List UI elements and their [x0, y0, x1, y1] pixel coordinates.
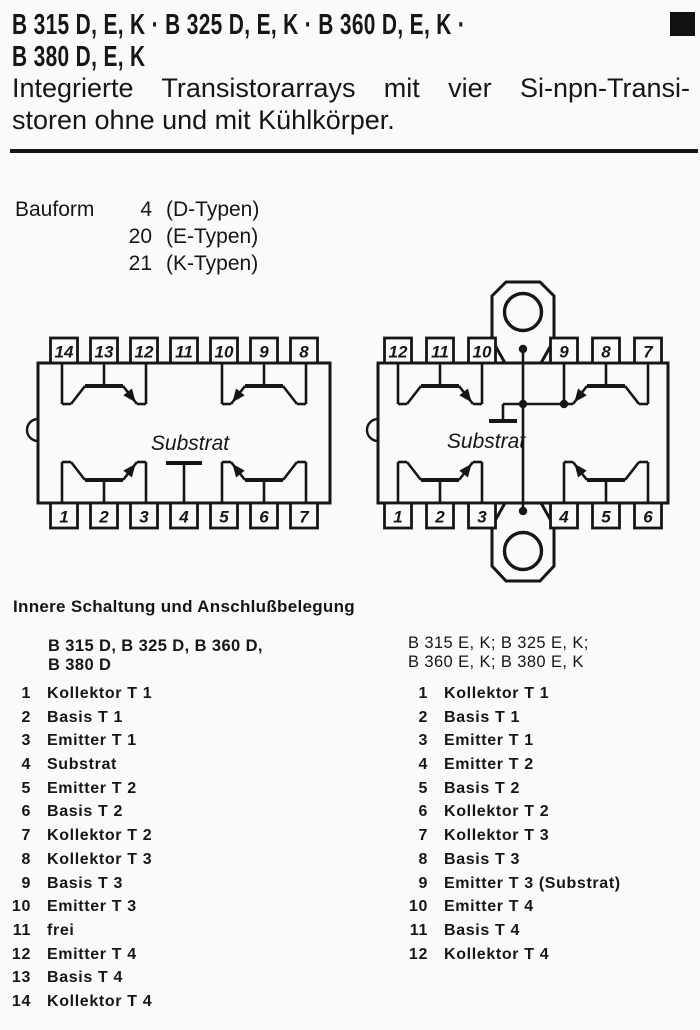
junction-dot — [560, 400, 568, 408]
pin-number-label: 11 — [431, 343, 449, 362]
pin-label: Emitter T 4 — [47, 946, 137, 963]
pin-number: 10 — [398, 895, 428, 919]
index-notch-icon — [27, 419, 38, 441]
pin-label: Basis T 1 — [444, 709, 520, 726]
pin-row: 14Kollektor T 4 — [8, 990, 152, 1014]
pin-label: Emitter T 3 — [47, 898, 137, 915]
pin-label: Kollektor T 3 — [444, 827, 549, 844]
pin-number-label: 9 — [559, 343, 569, 362]
page-title: B 315 D, E, K · B 325 D, E, K · B 360 D,… — [12, 9, 465, 73]
pin-number: 7 — [398, 824, 428, 848]
bauform-number: 20 — [118, 223, 152, 250]
pin-number: 12 — [398, 943, 428, 967]
bauform-type: (E-Typen) — [152, 223, 259, 250]
bauform-label: Bauform — [15, 196, 118, 223]
junction-dot — [519, 507, 527, 515]
pin-label: Kollektor T 1 — [444, 685, 549, 702]
pin-row: 8Kollektor T 3 — [8, 848, 152, 872]
bauform-type: (D-Typen) — [152, 196, 259, 223]
pin-number-label: 13 — [95, 343, 114, 362]
corner-mark-icon — [670, 12, 695, 36]
substrate-label: Substrat — [447, 430, 526, 453]
substrate-label: Substrat — [151, 432, 230, 455]
bauform-row: 20 (E-Typen) — [15, 223, 259, 250]
pin-number-label: 12 — [135, 343, 154, 362]
pin-number-label: 11 — [175, 343, 193, 362]
pin-number: 10 — [8, 895, 31, 919]
transistor-collector — [407, 386, 421, 404]
transistor-collector — [283, 462, 297, 480]
pin-label: Emitter T 1 — [47, 732, 137, 749]
pin-number: 3 — [398, 729, 428, 753]
title-line-1: B 315 D, E, K · B 325 D, E, K · B 360 D,… — [12, 9, 465, 41]
pin-number: 4 — [398, 753, 428, 777]
pin-label: Kollektor T 2 — [47, 827, 152, 844]
pin-number: 4 — [8, 753, 31, 777]
pin-number-label: 8 — [601, 343, 611, 362]
pin-number: 6 — [398, 800, 428, 824]
pin-row: 12Kollektor T 4 — [398, 943, 621, 967]
pin-number-label: 10 — [215, 343, 234, 362]
pin-number: 14 — [8, 990, 31, 1014]
pin-row: 9Basis T 3 — [8, 872, 152, 896]
pin-number: 2 — [398, 706, 428, 730]
pin-row: 3Emitter T 1 — [398, 729, 621, 753]
pin-row: 6Kollektor T 2 — [398, 800, 621, 824]
right-pinout-list: 1Kollektor T 12Basis T 13Emitter T 14Emi… — [398, 682, 621, 966]
mounting-hole-bottom — [505, 533, 542, 570]
pin-number: 2 — [8, 706, 31, 730]
pin-number-label: 7 — [299, 508, 310, 527]
index-notch-icon — [367, 419, 378, 441]
pin-row: 7Kollektor T 3 — [398, 824, 621, 848]
mounting-hole-top — [505, 294, 542, 331]
pin-row: 2Basis T 1 — [8, 706, 152, 730]
pin-row: 1Kollektor T 1 — [398, 682, 621, 706]
pin-row: 7Kollektor T 2 — [8, 824, 152, 848]
pin-number-label: 6 — [259, 508, 269, 527]
bauform-row: Bauform 4 (D-Typen) — [15, 196, 259, 223]
junction-dot — [519, 400, 527, 408]
transistor-collector — [625, 386, 639, 404]
pin-row: 4Emitter T 2 — [398, 753, 621, 777]
pin-number: 13 — [8, 966, 31, 990]
pin-number: 12 — [8, 943, 31, 967]
transistor-collector — [283, 386, 297, 404]
pin-row: 6Basis T 2 — [8, 800, 152, 824]
left-pinout-list: 1Kollektor T 12Basis T 13Emitter T 14Sub… — [8, 682, 152, 1014]
right-header-line-2: B 360 E, K; B 380 E, K — [408, 653, 589, 672]
pin-label: Basis T 4 — [47, 969, 123, 986]
title-line-2: B 380 D, E, K — [12, 41, 465, 73]
pin-number: 5 — [8, 777, 31, 801]
pin-label: Emitter T 2 — [444, 756, 534, 773]
pin-label: frei — [47, 922, 74, 939]
pin-number-label: 14 — [55, 343, 74, 362]
transistor-collector — [71, 386, 85, 404]
pin-label: Emitter T 3 (Substrat) — [444, 875, 621, 892]
left-column-header: B 315 D, B 325 D, B 360 D, B 380 D — [48, 637, 263, 674]
pin-number-label: 1 — [59, 508, 68, 527]
subtitle-line-1: Integrierte Transistorarrays mit vier Si… — [12, 72, 690, 104]
pin-row: 5Emitter T 2 — [8, 777, 152, 801]
pin-number: 3 — [8, 729, 31, 753]
pin-number-label: 1 — [393, 508, 402, 527]
pin-row: 12Emitter T 4 — [8, 943, 152, 967]
pin-row: 11Basis T 4 — [398, 919, 621, 943]
pin-number-label: 2 — [434, 508, 445, 527]
pin-number: 11 — [8, 919, 31, 943]
pin-number-label: 7 — [643, 343, 654, 362]
pin-row: 3Emitter T 1 — [8, 729, 152, 753]
section-heading: Innere Schaltung und Anschlußbelegung — [13, 597, 355, 617]
pin-number-label: 2 — [98, 508, 109, 527]
pin-label: Basis T 2 — [47, 803, 123, 820]
pin-number-label: 5 — [219, 508, 229, 527]
pin-label: Kollektor T 3 — [47, 851, 152, 868]
pin-label: Substrat — [47, 756, 117, 773]
left-header-line-1: B 315 D, B 325 D, B 360 D, — [48, 637, 263, 656]
pin-number: 9 — [8, 872, 31, 896]
bauform-block: Bauform 4 (D-Typen) 20 (E-Typen) 21 (K-T… — [15, 196, 259, 277]
pin-row: 4Substrat — [8, 753, 152, 777]
pin-number: 7 — [8, 824, 31, 848]
pin-label: Basis T 3 — [47, 875, 123, 892]
pin-row: 1Kollektor T 1 — [8, 682, 152, 706]
pin-label: Basis T 1 — [47, 709, 123, 726]
pin-label: Basis T 3 — [444, 851, 520, 868]
pin-label: Basis T 2 — [444, 780, 520, 797]
right-header-line-1: B 315 E, K; B 325 E, K; — [408, 634, 589, 653]
junction-dot — [519, 345, 527, 353]
pin-number-label: 9 — [259, 343, 269, 362]
pin-label: Basis T 4 — [444, 922, 520, 939]
pin-number: 6 — [8, 800, 31, 824]
transistor-collector — [625, 462, 639, 480]
pin-number-label: 4 — [178, 508, 189, 527]
pin-number-label: 8 — [299, 343, 309, 362]
pin-row: 5Basis T 2 — [398, 777, 621, 801]
pin-number: 1 — [8, 682, 31, 706]
transistor-collector — [407, 462, 421, 480]
pin-label: Kollektor T 2 — [444, 803, 549, 820]
bauform-number: 4 — [118, 196, 152, 223]
pin-label: Emitter T 1 — [444, 732, 534, 749]
divider-rule — [10, 149, 698, 153]
pin-row: 10Emitter T 4 — [398, 895, 621, 919]
pin-number: 9 — [398, 872, 428, 896]
pin-label: Kollektor T 4 — [444, 946, 549, 963]
pin-row: 8Basis T 3 — [398, 848, 621, 872]
pin-number-label: 10 — [473, 343, 492, 362]
pin-label: Emitter T 4 — [444, 898, 534, 915]
pin-number-label: 3 — [477, 508, 487, 527]
pin-number-label: 4 — [558, 508, 569, 527]
pin-row: 9Emitter T 3 (Substrat) — [398, 872, 621, 896]
pin-row: 2Basis T 1 — [398, 706, 621, 730]
pin-number: 8 — [398, 848, 428, 872]
pin-number-label: 5 — [601, 508, 611, 527]
page-subtitle: Integrierte Transistorarrays mit vier Si… — [12, 72, 690, 136]
pin-row: 13Basis T 4 — [8, 966, 152, 990]
left-header-line-2: B 380 D — [48, 656, 263, 675]
transistor-collector — [71, 462, 85, 480]
datasheet-page: B 315 D, E, K · B 325 D, E, K · B 360 D,… — [0, 0, 700, 1030]
pin-number: 11 — [398, 919, 428, 943]
pin-row: 10Emitter T 3 — [8, 895, 152, 919]
pin-number: 5 — [398, 777, 428, 801]
pin-number: 1 — [398, 682, 428, 706]
right-column-header: B 315 E, K; B 325 E, K; B 360 E, K; B 38… — [408, 634, 589, 671]
pin-label: Kollektor T 4 — [47, 993, 152, 1010]
pin-label: Kollektor T 1 — [47, 685, 152, 702]
ic-package-diagrams: 1413121110981234567Substrat1211109871234… — [0, 270, 700, 600]
pin-row: 11frei — [8, 919, 152, 943]
pin-number: 8 — [8, 848, 31, 872]
subtitle-line-2: storen ohne und mit Kühlkörper. — [12, 104, 690, 136]
pin-number-label: 3 — [139, 508, 149, 527]
pin-number-label: 12 — [389, 343, 408, 362]
pin-number-label: 6 — [643, 508, 653, 527]
pin-label: Emitter T 2 — [47, 780, 137, 797]
